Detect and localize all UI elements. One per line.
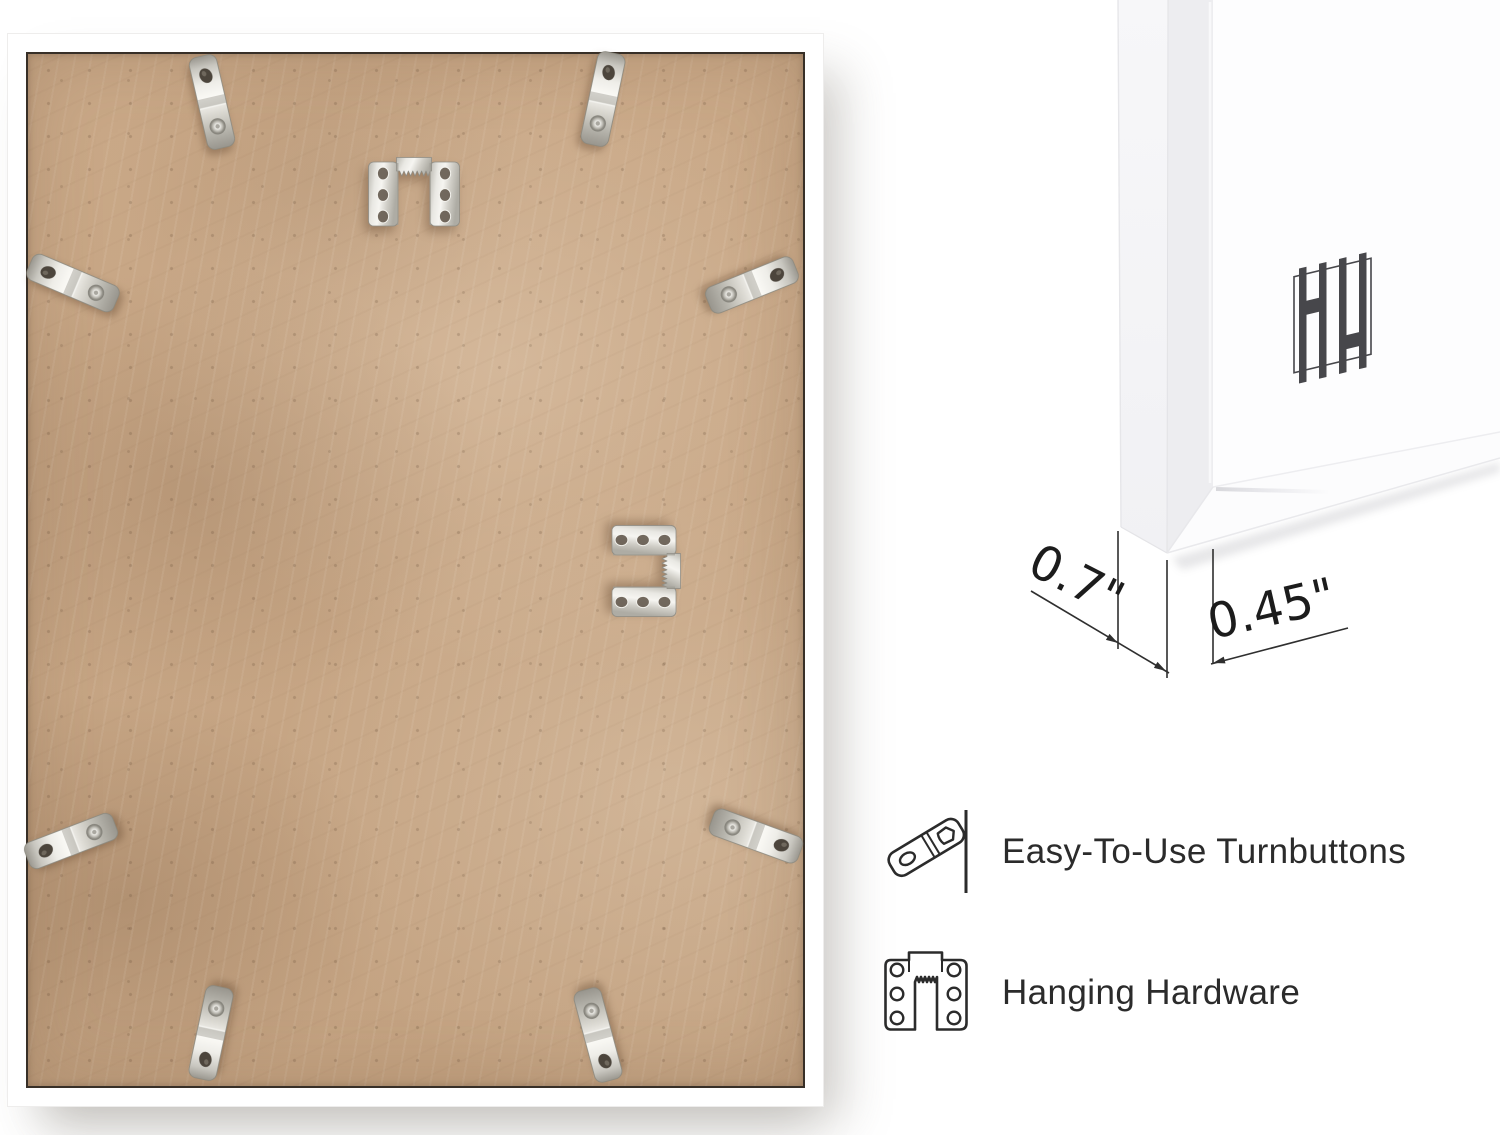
- product-infographic: 0.7" 0.45" Easy-To-Use Turnbuttons Hangi…: [0, 0, 1500, 1135]
- dimension-label-face-width: 0.45": [1202, 567, 1340, 651]
- frame-side-face: [1118, 0, 1168, 553]
- dimension-arrowheads: [1106, 634, 1226, 671]
- turnbutton-outline-icon: [878, 800, 988, 900]
- mat-area: [1213, 0, 1500, 487]
- hanging-hardware-outline-icon: [884, 951, 968, 1031]
- dimension-label-depth: 0.7": [1020, 533, 1133, 628]
- sawtooth-hanger-top: [368, 157, 460, 227]
- feature-label-turnbuttons: Easy-To-Use Turnbuttons: [1002, 830, 1406, 874]
- frame-border: [26, 52, 805, 1088]
- frame-back-photo: [8, 34, 823, 1106]
- frame-corner-render: 0.7" 0.45": [900, 0, 1500, 760]
- feature-label-hanging-hardware: Hanging Hardware: [1002, 971, 1300, 1015]
- sawtooth-hanger-middle: [611, 525, 681, 617]
- frame-front-face: [1167, 0, 1213, 553]
